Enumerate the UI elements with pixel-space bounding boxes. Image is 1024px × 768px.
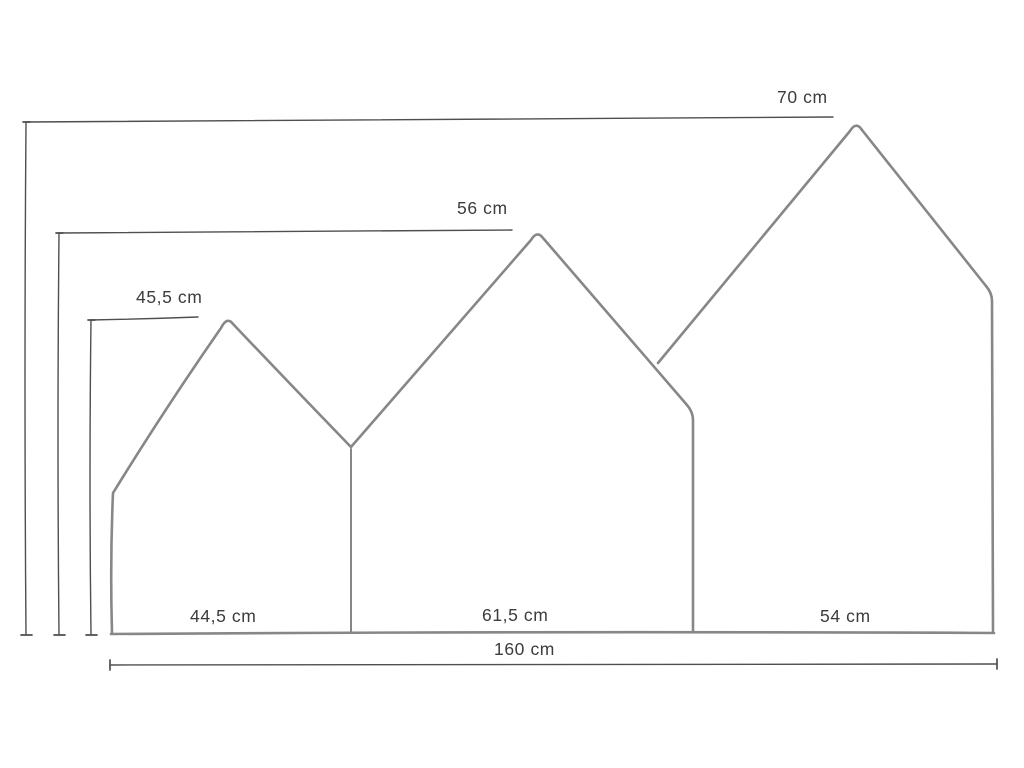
- dimension-drawing: 70 cm 56 cm 45,5 cm 44,5 cm 61,5 cm 54 c…: [0, 0, 1024, 768]
- dim-line-56: [58, 230, 512, 635]
- large-house-outline: [658, 126, 993, 631]
- height-label-medium: 56 cm: [457, 200, 508, 218]
- bottom-edge: [111, 632, 994, 634]
- height-label-large: 70 cm: [777, 89, 828, 107]
- dim-line-70: [25, 117, 833, 635]
- height-label-small: 45,5 cm: [136, 289, 202, 307]
- small-house-outline: [111, 321, 350, 633]
- width-label-small: 44,5 cm: [190, 608, 256, 626]
- medium-house-outline: [351, 234, 693, 632]
- dim-line-45: [90, 317, 198, 635]
- panel-outlines: [111, 126, 994, 634]
- width-label-medium: 61,5 cm: [482, 607, 548, 625]
- width-label-large: 54 cm: [820, 608, 871, 626]
- total-width-label: 160 cm: [494, 641, 555, 659]
- dim-line-160: [110, 664, 997, 665]
- dimension-lines: [21, 117, 997, 670]
